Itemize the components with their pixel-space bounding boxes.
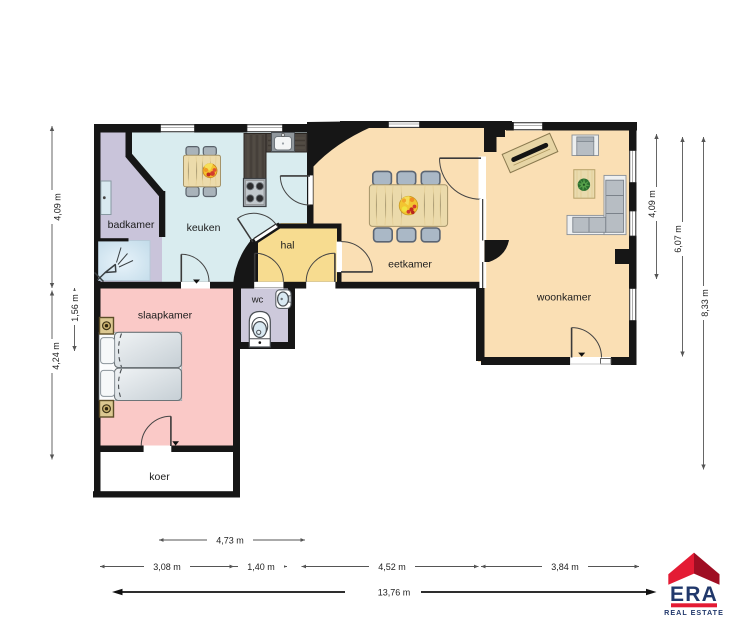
svg-text:4,73 m: 4,73 m — [216, 536, 244, 546]
svg-text:wc: wc — [251, 295, 264, 306]
svg-text:6,07 m: 6,07 m — [673, 225, 683, 253]
svg-text:1,40 m: 1,40 m — [247, 562, 275, 572]
svg-text:1,56 m: 1,56 m — [70, 294, 80, 322]
svg-text:ERA: ERA — [670, 583, 718, 606]
svg-text:woonkamer: woonkamer — [536, 292, 592, 304]
svg-text:3,84 m: 3,84 m — [551, 562, 579, 572]
svg-text:slaapkamer: slaapkamer — [138, 310, 193, 322]
svg-text:13,76 m: 13,76 m — [378, 588, 411, 598]
svg-text:4,24 m: 4,24 m — [51, 342, 61, 370]
svg-text:4,09 m: 4,09 m — [647, 190, 657, 218]
svg-text:4,52 m: 4,52 m — [378, 562, 406, 572]
svg-text:keuken: keuken — [187, 222, 221, 234]
svg-text:8,33 m: 8,33 m — [700, 289, 710, 317]
svg-text:badkamer: badkamer — [108, 219, 155, 231]
svg-text:REAL ESTATE: REAL ESTATE — [664, 608, 724, 617]
svg-text:4,09 m: 4,09 m — [53, 193, 63, 221]
svg-text:koer: koer — [149, 471, 170, 483]
svg-text:hal: hal — [280, 240, 294, 252]
svg-text:3,08 m: 3,08 m — [153, 562, 181, 572]
svg-text:eetkamer: eetkamer — [388, 259, 432, 271]
